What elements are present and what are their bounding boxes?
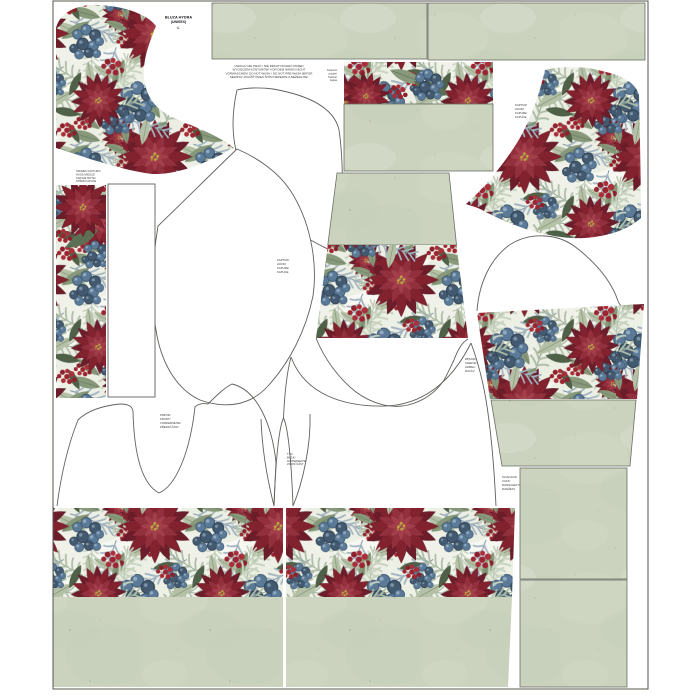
svg-text:KAPUCE: KAPUCE xyxy=(277,270,289,274)
svg-text:SEWING! POUŽIŤ PRED ŠITÍM NEPE: SEWING! POUŽIŤ PRED ŠITÍM NEPERTE A NEŽE… xyxy=(230,74,309,79)
svg-text:Tasche/: Tasche/ xyxy=(328,75,337,79)
svg-text:kapsa: kapsa xyxy=(330,78,337,82)
svg-text:RUKÁV: RUKÁV xyxy=(465,369,475,373)
svg-text:BLUZA HYDRA: BLUZA HYDRA xyxy=(165,16,193,20)
svg-text:PŘEDNÍ ČÁST: PŘEDNÍ ČÁST xyxy=(160,424,179,429)
svg-text:Kieszeń/: Kieszeń/ xyxy=(327,68,337,72)
svg-text:KAPUZE MITTE/: KAPUZE MITTE/ xyxy=(76,176,96,180)
svg-text:pocket/: pocket/ xyxy=(329,71,338,75)
svg-text:KAPUCE: KAPUCE xyxy=(515,115,527,119)
svg-text:HOOD MIDDLE/: HOOD MIDDLE/ xyxy=(76,172,95,176)
svg-text:(UNISEX): (UNISEX) xyxy=(171,20,186,24)
svg-text:ZADNÍ ČÁST: ZADNÍ ČÁST xyxy=(287,461,304,466)
svg-text:MANŽETA: MANŽETA xyxy=(502,486,515,491)
